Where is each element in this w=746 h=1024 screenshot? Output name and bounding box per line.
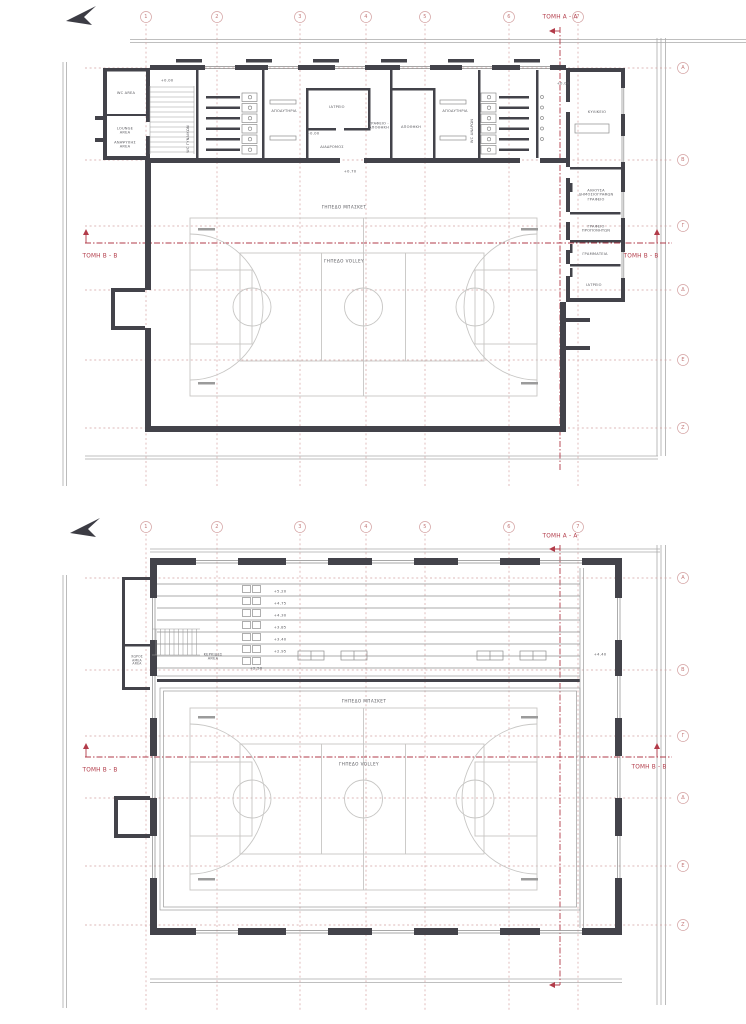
grid-lines <box>85 12 689 487</box>
balcony-edge <box>160 568 584 928</box>
windows-ground-floor <box>205 67 626 279</box>
staircase-ground-floor <box>150 86 194 154</box>
grid-lines <box>85 522 689 1013</box>
staircase-upper-floor <box>152 629 200 655</box>
site-boundary-lines <box>63 545 666 1008</box>
site-boundary-lines <box>63 38 746 486</box>
windows-upper-floor <box>153 561 621 934</box>
north-arrow-icon <box>66 6 96 25</box>
upper-floor-plan <box>63 518 689 1012</box>
drawing-sheet: 1234567ΑΒΓΔΕΖΤΟΜΗ Α - ΑΤΟΜΗ Β - ΒΤΟΜΗ Β … <box>0 0 746 1024</box>
north-arrow-icon <box>70 518 100 537</box>
basketball-court <box>190 218 538 396</box>
floor-plan-linework <box>0 0 746 1024</box>
basketball-court <box>190 708 538 890</box>
grandstand-seating <box>157 584 580 676</box>
walls-ground-floor <box>95 59 625 432</box>
section-lines <box>83 27 672 470</box>
ground-floor-plan <box>63 6 746 486</box>
wc-fixtures <box>206 93 609 154</box>
